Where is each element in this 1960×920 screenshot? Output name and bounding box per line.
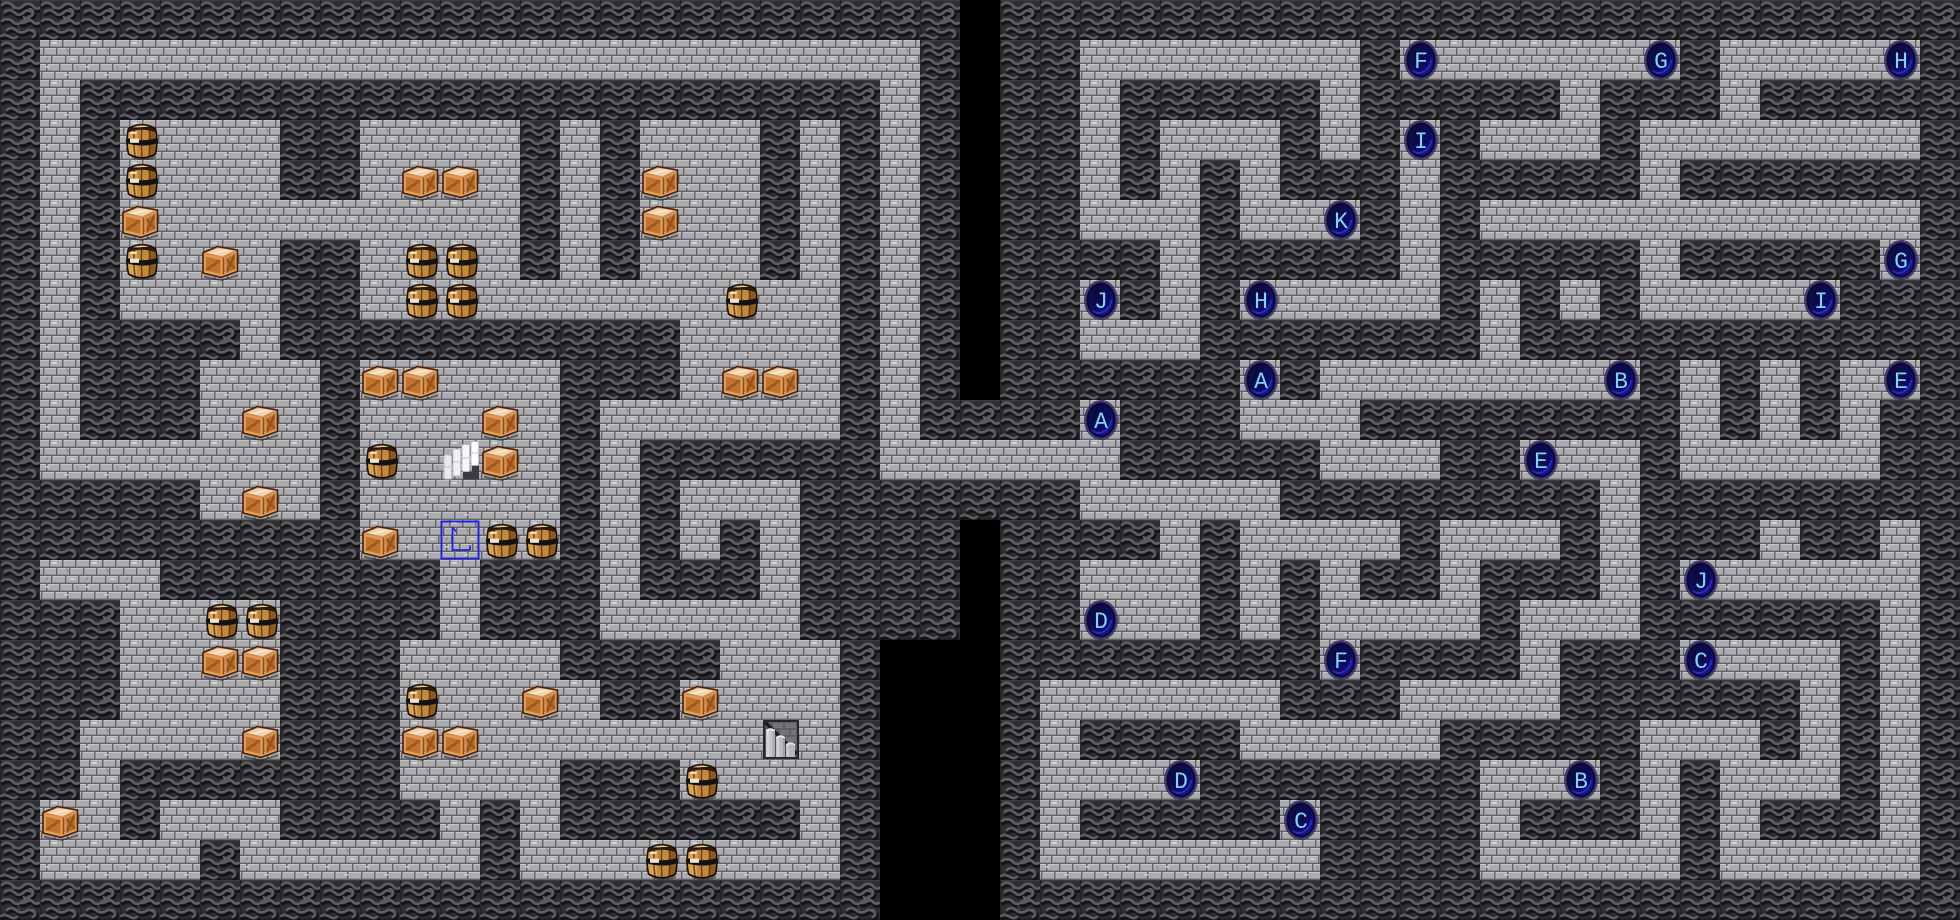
svg-text:I: I xyxy=(1414,129,1428,155)
svg-text:A: A xyxy=(1254,369,1268,395)
svg-text:F: F xyxy=(1414,49,1428,75)
svg-text:H: H xyxy=(1894,49,1908,75)
svg-text:J: J xyxy=(1694,569,1708,595)
svg-text:G: G xyxy=(1654,49,1668,75)
svg-text:E: E xyxy=(1894,369,1908,395)
svg-text:B: B xyxy=(1614,369,1628,395)
svg-text:I: I xyxy=(1814,289,1828,315)
svg-text:B: B xyxy=(1574,769,1588,795)
svg-text:K: K xyxy=(1334,209,1348,235)
svg-text:G: G xyxy=(1894,249,1908,275)
svg-text:C: C xyxy=(1294,809,1308,835)
svg-text:A: A xyxy=(1094,409,1108,435)
svg-text:J: J xyxy=(1094,289,1108,315)
svg-text:F: F xyxy=(1334,649,1348,675)
svg-text:D: D xyxy=(1094,609,1108,635)
svg-text:C: C xyxy=(1694,649,1708,675)
svg-text:H: H xyxy=(1254,289,1268,315)
svg-text:E: E xyxy=(1534,449,1548,475)
svg-text:D: D xyxy=(1174,769,1188,795)
